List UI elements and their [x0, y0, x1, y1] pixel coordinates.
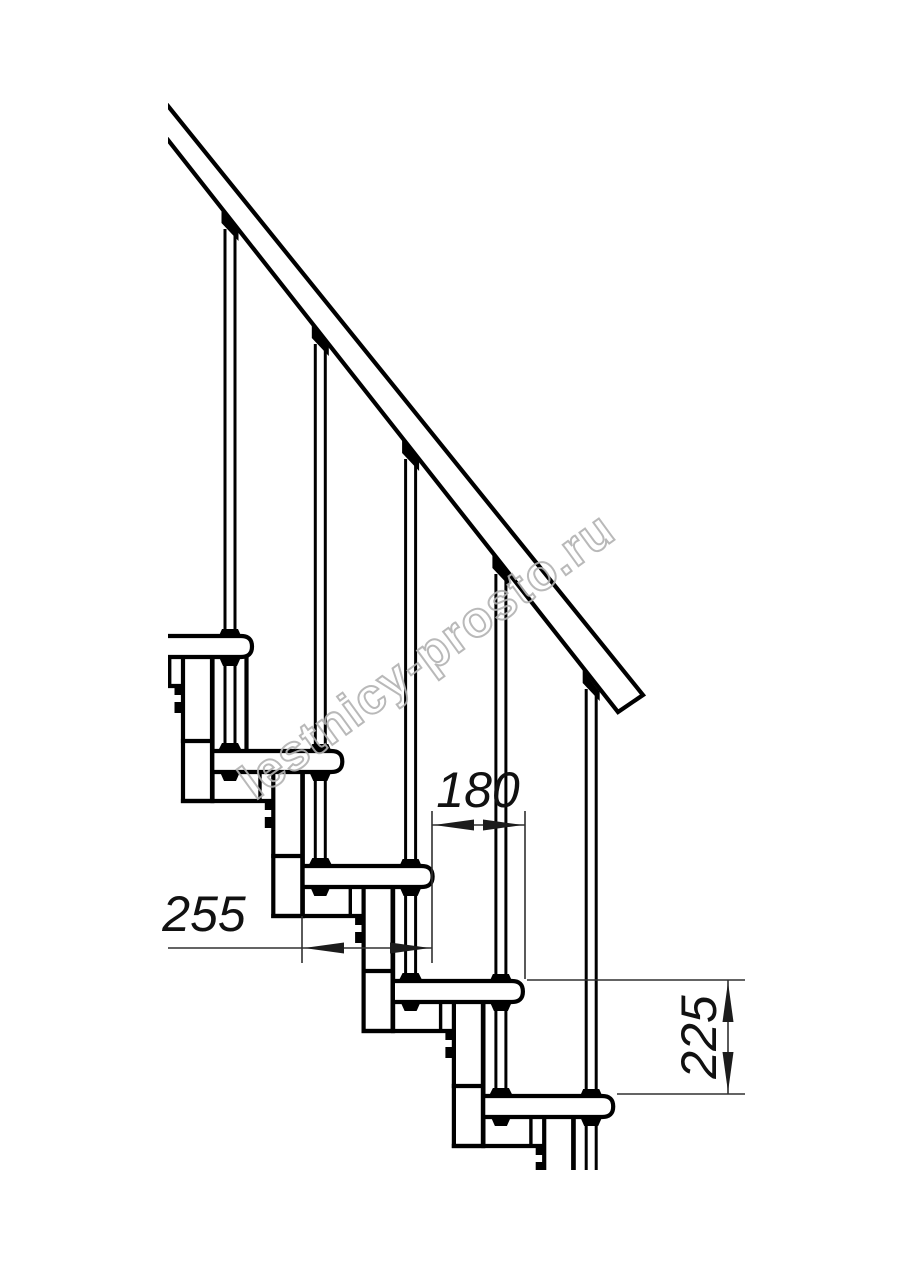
arrowhead-right [483, 820, 523, 831]
dim-label-rise: 225 [671, 995, 727, 1080]
stringer-column [544, 1116, 573, 1261]
staircase-drawing: 255 180 225 lestnicy-prosto.ru [0, 0, 914, 1280]
post-foot [579, 1203, 603, 1211]
arrowhead-right [390, 943, 430, 954]
bolt-nub [265, 817, 274, 828]
dim-label-tread-depth: 255 [161, 886, 246, 942]
tread-nut [490, 1002, 512, 1011]
drawing-page: 255 180 225 lestnicy-prosto.ru [0, 0, 914, 1280]
dimension-rise: 225 [527, 980, 745, 1094]
bolt-nub [175, 702, 184, 713]
baluster-foot [128, 514, 152, 523]
structure-clip-group [32, 95, 643, 1261]
tread-nut [219, 657, 241, 666]
bolt-nub [175, 684, 184, 695]
post-foot [128, 628, 152, 636]
baluster-foot [579, 1089, 603, 1098]
tread-nut [130, 657, 150, 666]
stringer-column [364, 886, 393, 1031]
tread-nut [400, 887, 422, 896]
staircase-structure [32, 95, 635, 1261]
dimension-going: 180 [432, 762, 525, 979]
baluster-foot [218, 629, 242, 638]
tread [32, 521, 162, 542]
stringer-column [454, 1001, 483, 1146]
bolt-nub [84, 587, 93, 598]
rail-connector [131, 95, 148, 126]
bolt-nub [84, 569, 93, 580]
bolt-nub [445, 1047, 454, 1058]
stringer-column [93, 541, 122, 686]
tread-nut [309, 772, 331, 781]
bolt-nub [355, 932, 364, 943]
tread-nut [581, 1232, 601, 1241]
step-module [32, 95, 183, 686]
arrowhead-left [434, 820, 474, 831]
arrowhead-left [304, 943, 344, 954]
tread-nut [129, 542, 151, 551]
step-module [122, 210, 273, 801]
tread [303, 866, 433, 887]
tread [122, 636, 252, 657]
bolt-nub [355, 914, 364, 925]
bolt-nub [536, 1162, 545, 1173]
tread [483, 1096, 613, 1117]
tread [393, 981, 523, 1002]
bolt-nub [445, 1029, 454, 1040]
dim-label-going: 180 [436, 762, 520, 818]
stringer-column [183, 656, 212, 801]
baluster-foot [399, 859, 423, 868]
bolt-nub [536, 1144, 545, 1155]
watermark-text: lestnicy-prosto.ru [229, 501, 625, 810]
baluster-foot [489, 974, 513, 983]
tread-nut [580, 1117, 602, 1126]
